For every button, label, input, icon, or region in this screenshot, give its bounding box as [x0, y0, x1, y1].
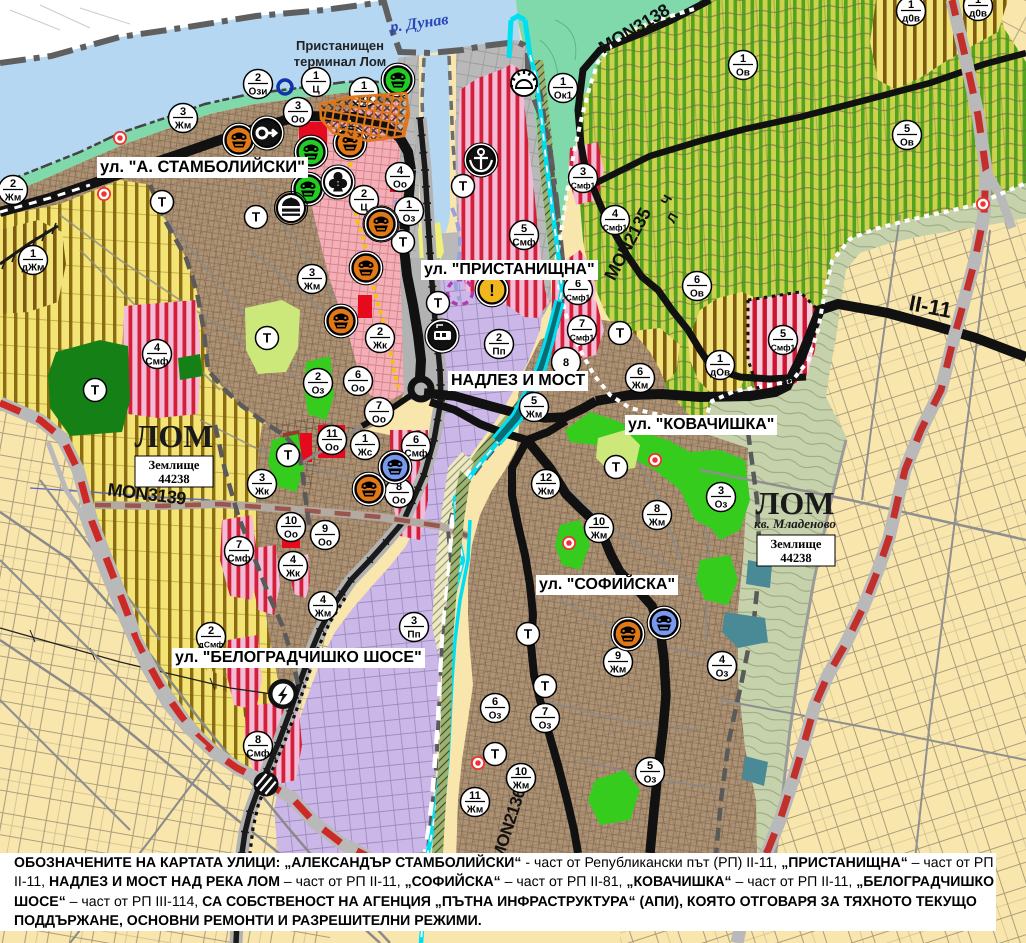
svg-text:Жс: Жс — [357, 448, 373, 459]
svg-text:Т: Т — [263, 331, 272, 346]
svg-text:Смф1: Смф1 — [603, 223, 628, 233]
svg-text:дОв: дОв — [710, 368, 730, 379]
svg-text:3: 3 — [309, 267, 315, 279]
svg-text:3: 3 — [718, 485, 724, 497]
svg-text:Т: Т — [541, 679, 550, 694]
svg-text:2: 2 — [496, 332, 502, 344]
svg-text:12: 12 — [540, 472, 552, 484]
svg-text:1: 1 — [717, 353, 723, 365]
svg-text:Оо: Оо — [318, 538, 332, 549]
svg-text:2: 2 — [377, 326, 383, 338]
svg-text:10: 10 — [285, 515, 297, 527]
svg-text:5: 5 — [531, 395, 537, 407]
svg-text:3: 3 — [580, 166, 586, 178]
svg-text:10: 10 — [515, 766, 527, 778]
svg-text:Т: Т — [284, 448, 293, 463]
svg-text:2: 2 — [10, 178, 16, 190]
svg-text:Жм: Жм — [512, 781, 529, 792]
svg-text:Жм: Жм — [537, 487, 554, 498]
svg-text:10: 10 — [593, 516, 605, 528]
svg-text:Т: Т — [491, 747, 500, 762]
svg-text:Т: Т — [252, 210, 261, 225]
svg-text:Смф1: Смф1 — [771, 343, 796, 353]
svg-text:Смф1: Смф1 — [566, 293, 591, 303]
svg-text:Оз: Оз — [539, 721, 552, 732]
svg-text:9: 9 — [615, 650, 621, 662]
svg-text:3: 3 — [411, 615, 417, 627]
svg-text:Ов: Ов — [690, 289, 704, 300]
svg-text:Ози: Ози — [249, 87, 268, 98]
svg-text:2: 2 — [255, 72, 261, 84]
svg-text:7: 7 — [542, 706, 548, 718]
svg-text:Жм: Жм — [609, 665, 626, 676]
svg-text:!: ! — [489, 281, 495, 300]
svg-text:4: 4 — [290, 554, 297, 566]
svg-text:5: 5 — [521, 223, 527, 235]
svg-text:Жм: Жм — [174, 121, 191, 132]
svg-text:Оз: Оз — [403, 214, 416, 225]
svg-text:Т: Т — [91, 383, 100, 398]
svg-text:Оо: Оо — [291, 115, 305, 126]
svg-text:д0в: д0в — [902, 14, 920, 25]
svg-text:Жк: Жк — [285, 569, 301, 580]
svg-text:Т: Т — [158, 195, 167, 210]
svg-text:8: 8 — [654, 503, 660, 515]
svg-text:1: 1 — [30, 248, 36, 260]
svg-text:6: 6 — [694, 274, 700, 286]
svg-text:Оз: Оз — [489, 711, 502, 722]
svg-text:6: 6 — [492, 696, 498, 708]
svg-text:д0в: д0в — [969, 9, 987, 20]
svg-text:1: 1 — [406, 199, 412, 211]
svg-text:1: 1 — [560, 76, 566, 88]
svg-text:Пп: Пп — [492, 347, 505, 358]
svg-text:7: 7 — [376, 400, 382, 412]
svg-text:4: 4 — [612, 208, 619, 220]
svg-text:Ок1: Ок1 — [554, 91, 573, 102]
svg-text:Жм: Жм — [4, 193, 21, 204]
svg-text:3: 3 — [180, 106, 186, 118]
svg-text:Жк: Жк — [372, 341, 388, 352]
svg-text:Жм: Жм — [525, 410, 542, 421]
svg-text:Жм: Жм — [590, 531, 607, 542]
svg-text:Оо: Оо — [392, 496, 406, 507]
svg-text:Оо: Оо — [325, 443, 339, 454]
svg-text:Т: Т — [399, 235, 408, 250]
svg-text:1: 1 — [313, 70, 319, 82]
svg-text:11: 11 — [469, 790, 481, 802]
svg-text:11: 11 — [326, 428, 338, 440]
svg-text:1: 1 — [740, 53, 746, 65]
svg-text:2: 2 — [315, 371, 321, 383]
svg-text:Жм: Жм — [314, 609, 331, 620]
svg-text:Жм: Жм — [303, 282, 320, 293]
svg-text:Оо: Оо — [372, 415, 386, 426]
svg-text:Смф: Смф — [227, 554, 250, 565]
svg-text:8: 8 — [255, 734, 261, 746]
svg-text:Т: Т — [612, 460, 621, 475]
svg-text:Оз: Оз — [715, 500, 728, 511]
svg-text:Смф1: Смф1 — [571, 181, 596, 191]
svg-text:Жк: Жк — [254, 487, 270, 498]
svg-text:8: 8 — [563, 357, 569, 369]
svg-text:II-11: II-11 — [907, 290, 954, 323]
svg-text:1: 1 — [362, 433, 368, 445]
svg-text:дЖм: дЖм — [22, 263, 45, 274]
svg-text:3: 3 — [259, 472, 265, 484]
svg-text:Жм: Жм — [631, 381, 648, 392]
svg-text:Смф: Смф — [246, 749, 269, 760]
svg-text:Ов: Ов — [900, 138, 914, 149]
svg-text:Ов: Ов — [736, 68, 750, 79]
svg-text:1: 1 — [361, 80, 367, 92]
svg-text:2: 2 — [208, 625, 214, 637]
svg-text:1: 1 — [908, 0, 914, 11]
svg-text:7: 7 — [236, 539, 242, 551]
svg-text:Пп: Пп — [407, 630, 420, 641]
svg-text:6: 6 — [637, 366, 643, 378]
svg-text:Оо: Оо — [351, 384, 365, 395]
svg-text:4: 4 — [154, 342, 161, 354]
svg-text:Жм: Жм — [466, 805, 483, 816]
svg-text:3: 3 — [295, 100, 301, 112]
svg-text:Т: Т — [524, 627, 533, 642]
svg-text:Оо: Оо — [284, 530, 298, 541]
svg-text:Оо: Оо — [393, 180, 407, 191]
svg-text:7: 7 — [579, 318, 585, 330]
svg-text:Ц: Ц — [312, 85, 320, 96]
svg-text:4: 4 — [397, 165, 404, 177]
svg-text:6: 6 — [413, 434, 419, 446]
svg-text:5: 5 — [904, 123, 910, 135]
svg-text:4: 4 — [320, 594, 327, 606]
svg-text:5: 5 — [647, 760, 653, 772]
svg-text:Смф1: Смф1 — [570, 333, 595, 343]
svg-text:4: 4 — [719, 654, 726, 666]
svg-text:6: 6 — [355, 369, 361, 381]
svg-text:9: 9 — [322, 523, 328, 535]
svg-text:Смф: Смф — [512, 238, 535, 249]
svg-text:2: 2 — [361, 188, 367, 200]
svg-text:Оз: Оз — [312, 386, 325, 397]
svg-text:Смф: Смф — [145, 357, 168, 368]
svg-text:Т: Т — [459, 179, 468, 194]
svg-text:Т: Т — [616, 326, 625, 341]
svg-text:Оз: Оз — [716, 669, 729, 680]
svg-text:Т: Т — [434, 296, 443, 311]
svg-text:5: 5 — [780, 328, 786, 340]
svg-text:Жм: Жм — [648, 518, 665, 529]
svg-text:Оз: Оз — [644, 775, 657, 786]
